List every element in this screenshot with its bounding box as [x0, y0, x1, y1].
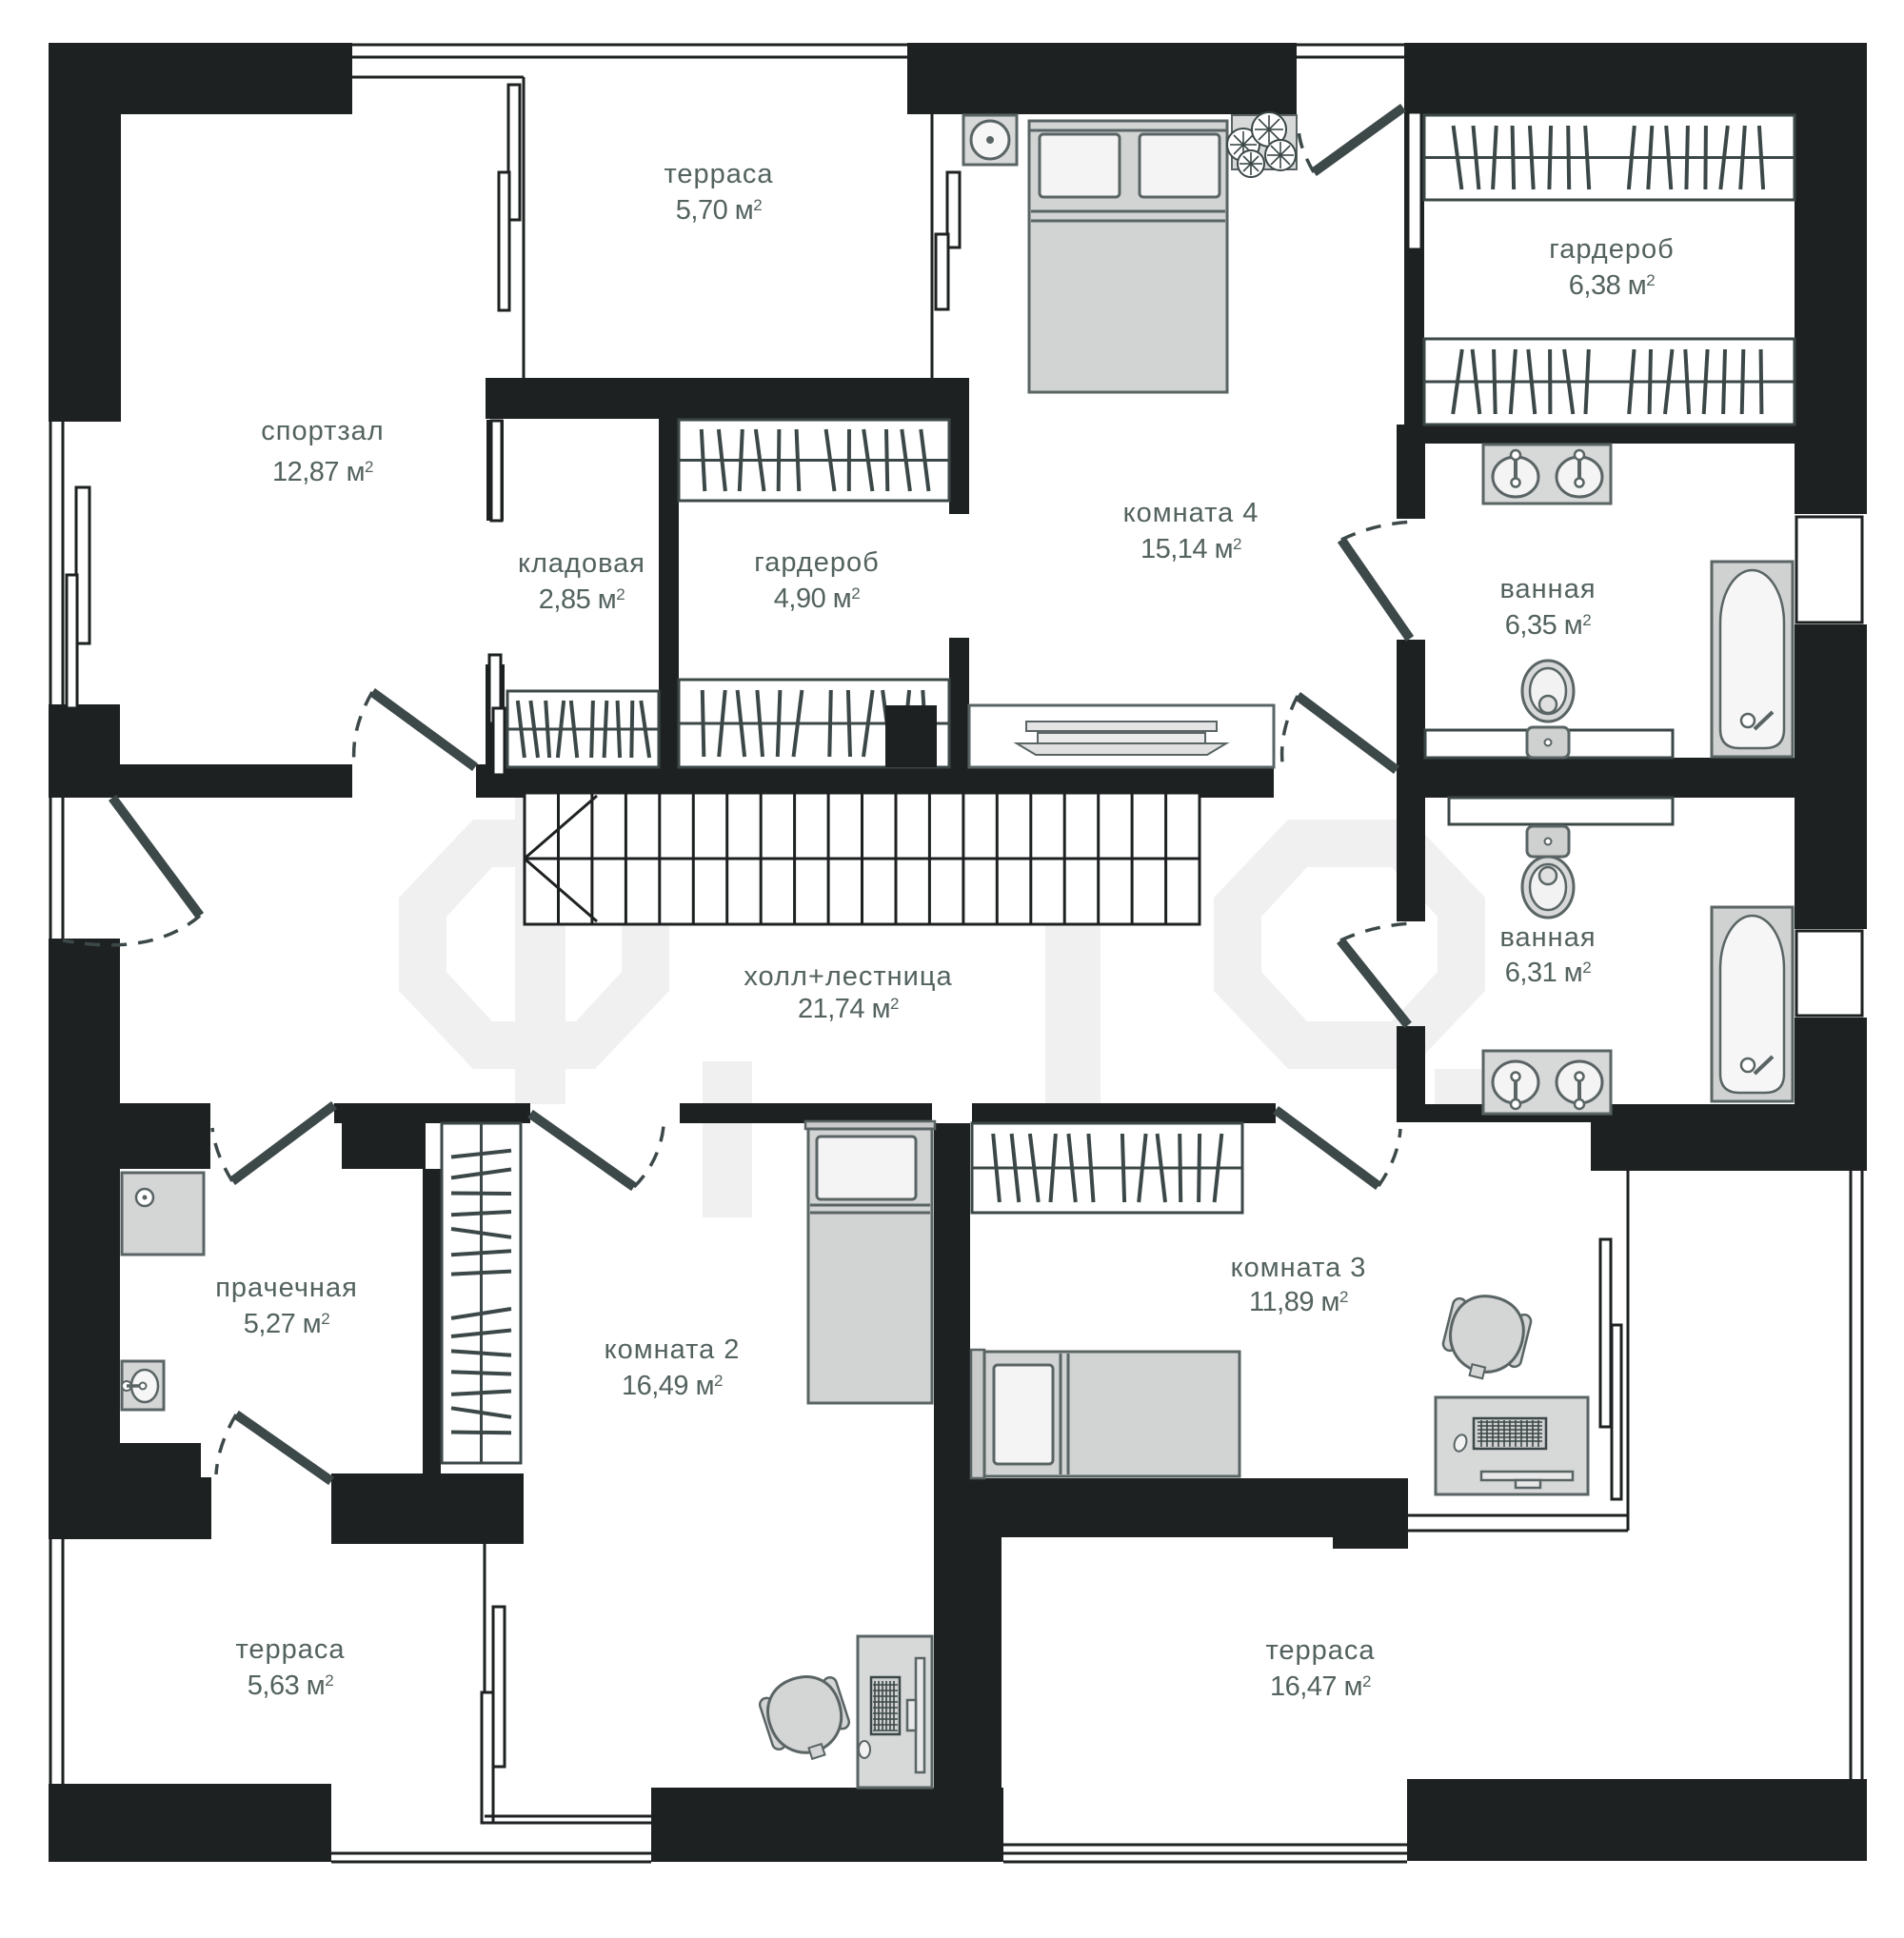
svg-text:ванная: ванная — [1499, 922, 1596, 953]
svg-text:гардероб: гардероб — [754, 547, 879, 578]
svg-text:холл+лестница: холл+лестница — [744, 961, 952, 992]
svg-text:ванная: ванная — [1499, 574, 1596, 604]
svg-text:комната 4: комната 4 — [1123, 498, 1259, 528]
svg-text:2,85 м2: 2,85 м2 — [539, 584, 625, 615]
svg-text:кладовая: кладовая — [518, 548, 645, 579]
svg-text:терраса: терраса — [1265, 1635, 1375, 1666]
svg-text:21,74 м2: 21,74 м2 — [798, 994, 899, 1024]
svg-text:4,90 м2: 4,90 м2 — [774, 583, 860, 614]
svg-text:6,38 м2: 6,38 м2 — [1569, 270, 1655, 301]
svg-text:5,63 м2: 5,63 м2 — [248, 1671, 333, 1701]
svg-text:11,89 м2: 11,89 м2 — [1249, 1287, 1348, 1317]
svg-text:гардероб: гардероб — [1549, 234, 1674, 265]
svg-text:комната 3: комната 3 — [1231, 1253, 1367, 1283]
svg-text:6,35 м2: 6,35 м2 — [1505, 610, 1591, 641]
svg-text:15,14 м2: 15,14 м2 — [1140, 534, 1241, 564]
svg-text:16,47 м2: 16,47 м2 — [1270, 1671, 1371, 1702]
svg-text:спортзал: спортзал — [261, 416, 384, 446]
svg-text:16,49 м2: 16,49 м2 — [622, 1371, 723, 1401]
svg-text:терраса: терраса — [235, 1634, 345, 1665]
svg-text:комната 2: комната 2 — [605, 1335, 741, 1365]
svg-text:терраса: терраса — [664, 159, 773, 189]
svg-text:5,70 м2: 5,70 м2 — [676, 195, 762, 226]
svg-text:прачечная: прачечная — [215, 1273, 358, 1303]
svg-text:12,87 м2: 12,87 м2 — [272, 457, 373, 487]
svg-text:6,31 м2: 6,31 м2 — [1505, 958, 1591, 988]
svg-text:5,27 м2: 5,27 м2 — [244, 1309, 329, 1339]
